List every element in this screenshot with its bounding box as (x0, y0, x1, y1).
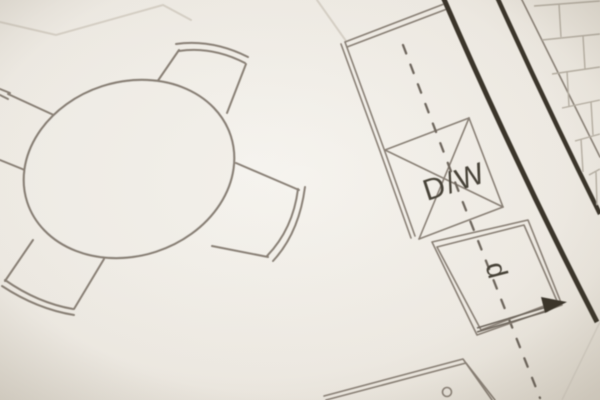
floorplan-drawing: D/W d (0, 0, 600, 400)
vignette-overlay (0, 0, 600, 400)
floorplan-photo: D/W d (0, 0, 600, 400)
